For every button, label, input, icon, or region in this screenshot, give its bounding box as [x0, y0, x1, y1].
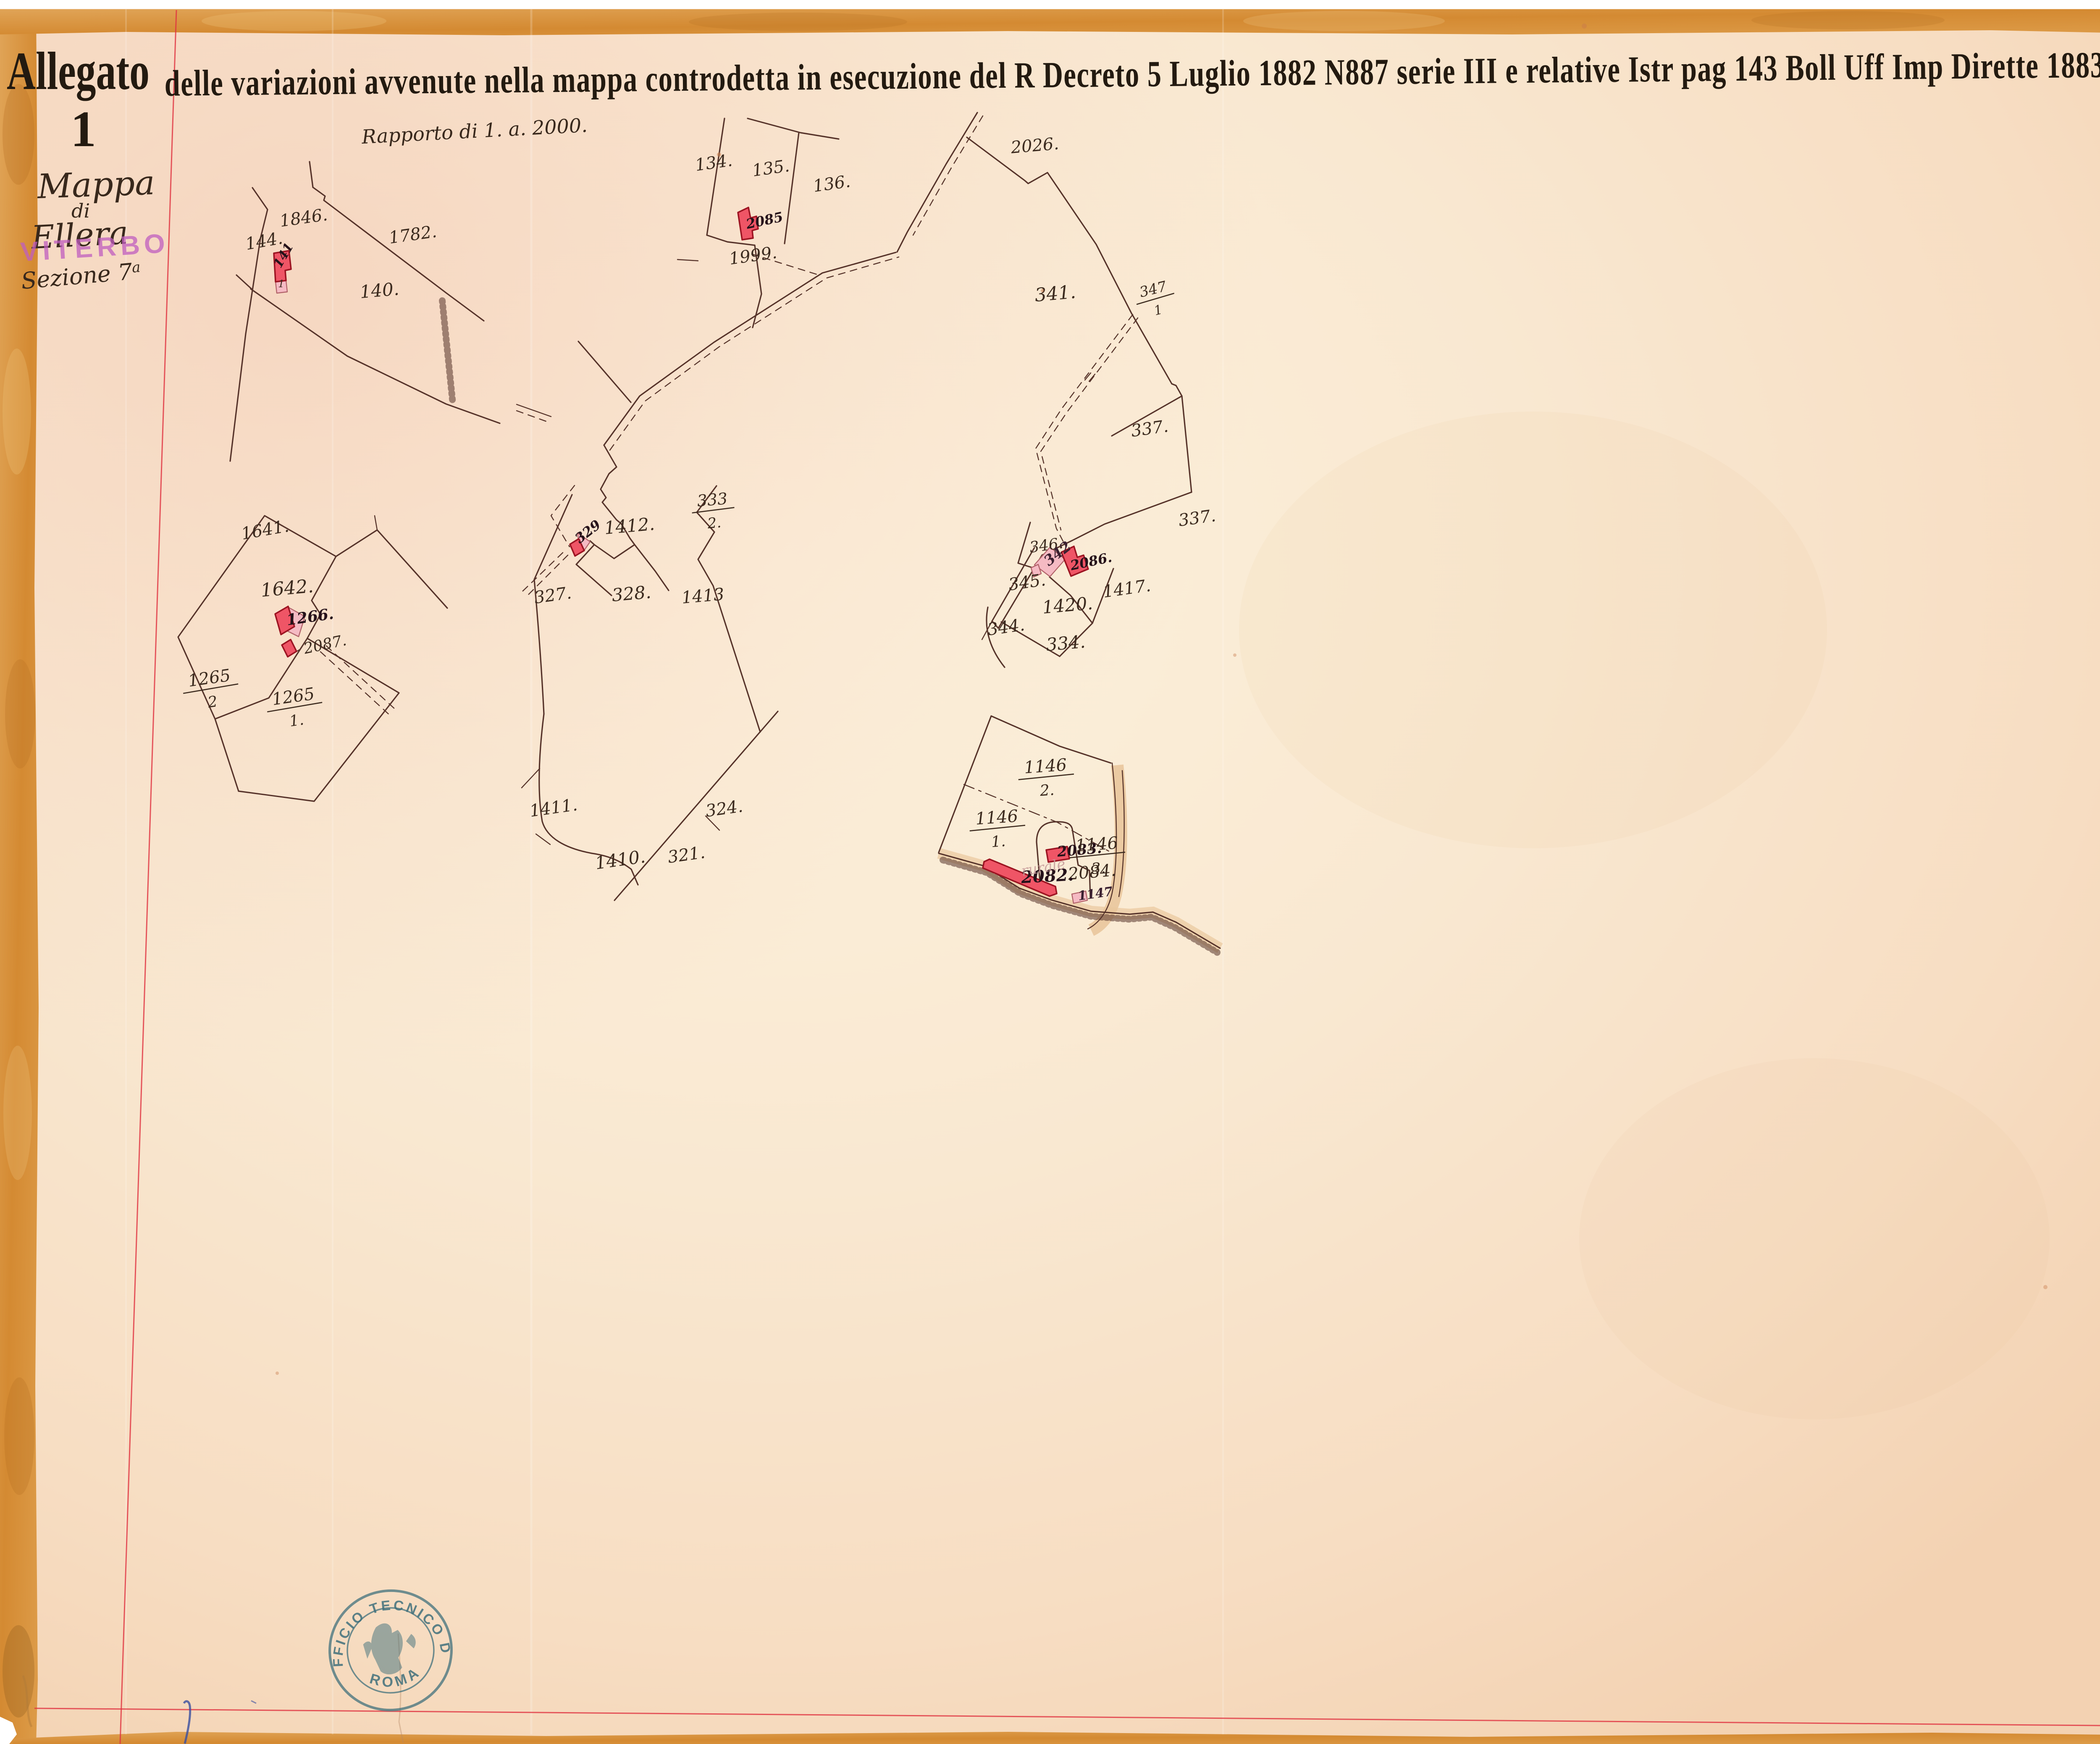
parcel-label: 341.: [1034, 281, 1077, 306]
fraction-part: 333: [696, 489, 728, 510]
parcel-label: 334.: [1045, 631, 1086, 655]
fraction-part: 1146: [975, 807, 1019, 829]
map-canvas: 1846.144.1782.140.1411134.135.136.208519…: [0, 0, 2100, 1744]
fraction-part: 1146: [1024, 755, 1068, 778]
paper-stain: [1579, 1058, 2050, 1419]
fraction-part: 1146: [1075, 834, 1119, 856]
fraction-part: 2.: [706, 514, 722, 532]
parcel-label: 1412.: [604, 514, 656, 538]
parcel-label: 1413: [681, 585, 725, 608]
fraction-part: 1.: [991, 833, 1006, 851]
parcel-label: 328.: [611, 582, 652, 606]
scan-edge-top: [0, 0, 2100, 9]
header-lead: Allegato: [7, 41, 150, 101]
parcel-label: 140.: [359, 278, 400, 302]
scanned-map-sheet: 1846.144.1782.140.1411134.135.136.208519…: [0, 0, 2100, 1744]
map-title-line1: Mappa: [36, 163, 155, 206]
fraction-part: 1.: [288, 711, 305, 730]
parcel-label: 1420.: [1042, 593, 1094, 618]
fraction-part: 3.: [1091, 860, 1106, 878]
section-superscript: a: [131, 259, 141, 276]
fraction-part: 2.: [1039, 782, 1055, 800]
sheet-number: 1: [71, 101, 96, 157]
paper-stain: [1239, 412, 1827, 848]
parcel-label: 1: [278, 278, 284, 290]
